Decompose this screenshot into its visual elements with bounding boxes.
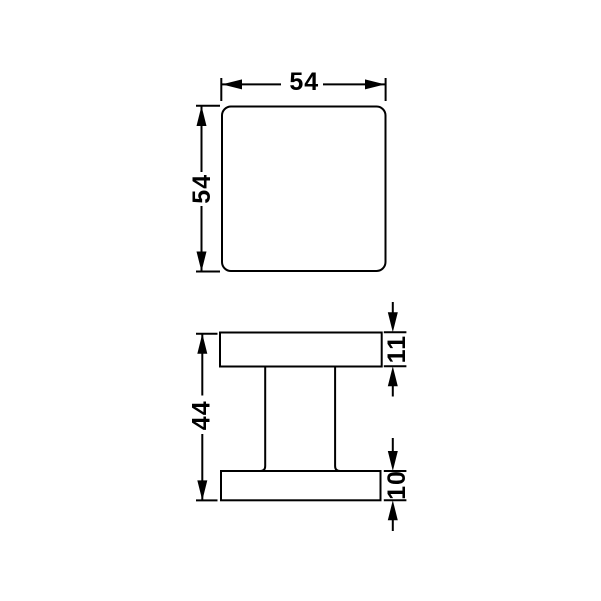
- svg-text:10: 10: [383, 470, 411, 500]
- svg-text:54: 54: [188, 174, 216, 204]
- svg-text:44: 44: [187, 400, 215, 430]
- svg-text:11: 11: [383, 335, 411, 363]
- svg-text:54: 54: [289, 68, 319, 96]
